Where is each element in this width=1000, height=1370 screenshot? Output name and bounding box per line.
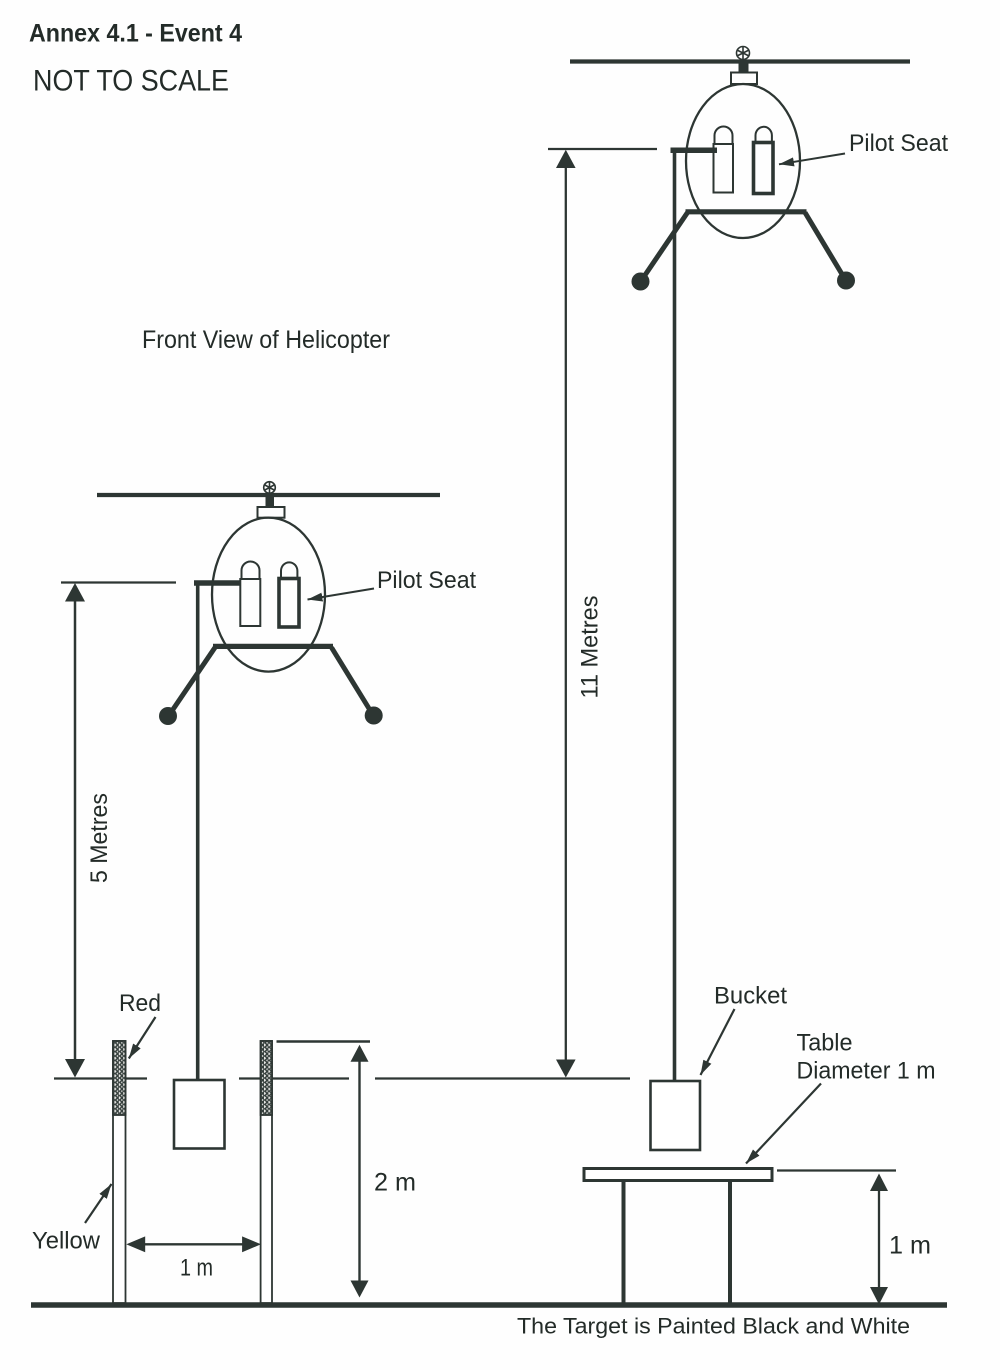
svg-text:Diameter 1 m: Diameter 1 m — [797, 1058, 936, 1085]
svg-text:1 m: 1 m — [889, 1232, 931, 1260]
svg-text:Yellow: Yellow — [32, 1228, 101, 1255]
svg-text:NOT TO SCALE: NOT TO SCALE — [33, 65, 229, 98]
svg-text:Red: Red — [119, 990, 161, 1017]
svg-text:11 Metres: 11 Metres — [577, 596, 604, 699]
svg-text:1 m: 1 m — [180, 1255, 213, 1282]
svg-text:5 Metres: 5 Metres — [86, 793, 113, 883]
svg-text:2 m: 2 m — [374, 1169, 416, 1197]
svg-text:Table: Table — [797, 1030, 853, 1057]
svg-text:Bucket: Bucket — [714, 983, 787, 1010]
svg-text:The Target is Painted Black an: The Target is Painted Black and White — [517, 1314, 910, 1339]
svg-text:Front View of Helicopter: Front View of Helicopter — [142, 326, 390, 354]
svg-text:Pilot Seat: Pilot Seat — [849, 130, 948, 157]
svg-text:Pilot Seat: Pilot Seat — [377, 567, 476, 594]
svg-text:Annex 4.1 - Event 4: Annex 4.1 - Event 4 — [29, 20, 242, 48]
